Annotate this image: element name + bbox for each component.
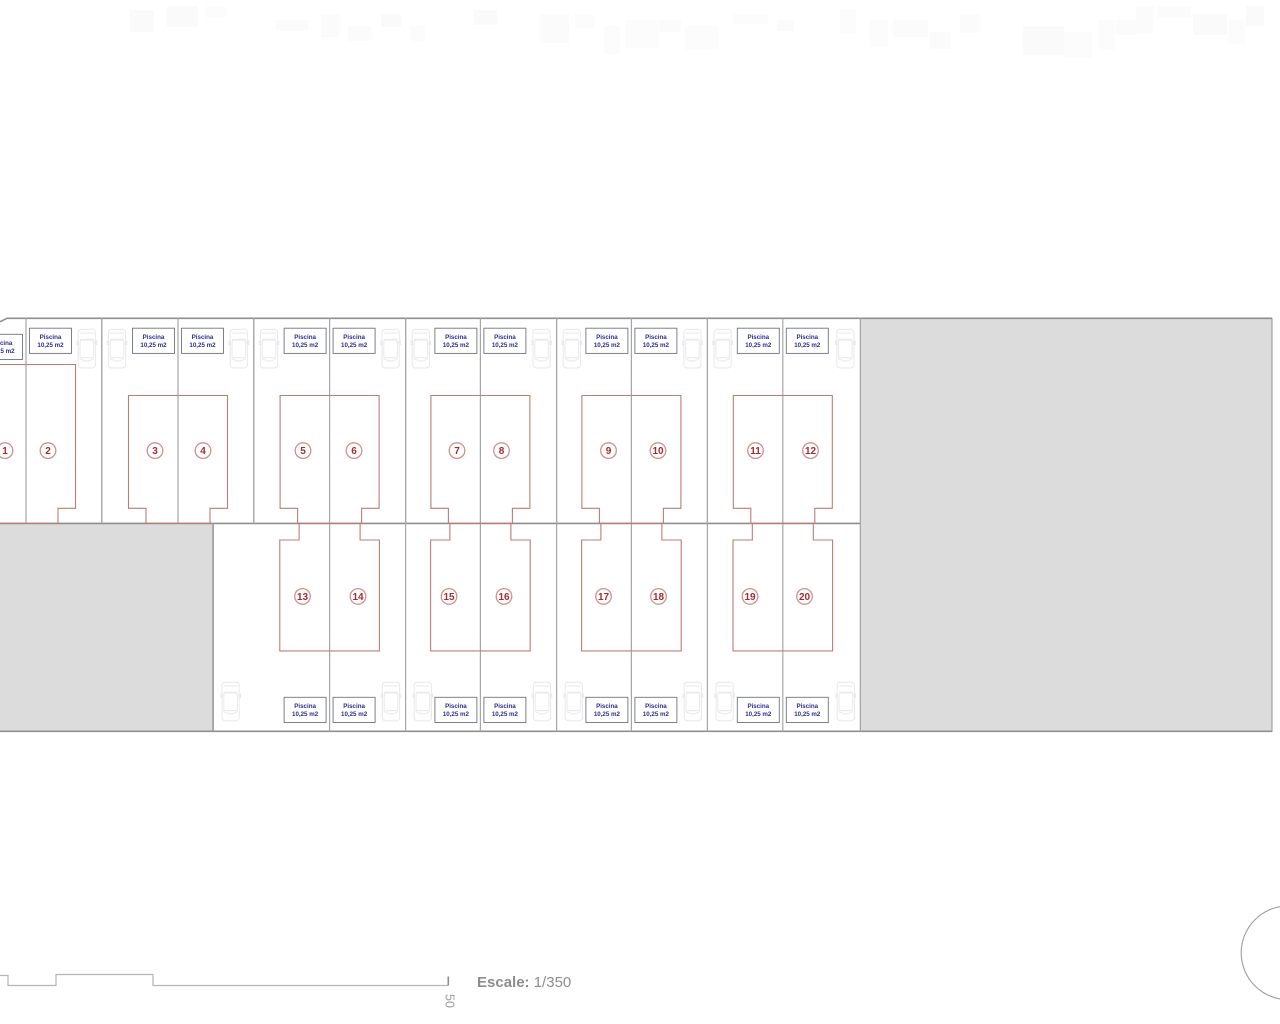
svg-text:14: 14 (352, 592, 364, 603)
svg-text:10,25 m2: 10,25 m2 (0, 348, 15, 355)
svg-text:Piscina: Piscina (796, 703, 818, 710)
svg-text:Piscina: Piscina (40, 334, 62, 341)
svg-text:10,25 m2: 10,25 m2 (341, 342, 368, 349)
svg-text:10,25 m2: 10,25 m2 (492, 342, 519, 349)
svg-text:12: 12 (805, 446, 817, 457)
svg-text:6: 6 (351, 446, 357, 457)
svg-text:Piscina: Piscina (494, 703, 516, 710)
svg-text:Piscina: Piscina (192, 334, 214, 341)
svg-text:4: 4 (200, 446, 206, 457)
svg-text:10,25 m2: 10,25 m2 (189, 342, 216, 349)
svg-text:Piscina: Piscina (596, 334, 618, 341)
svg-text:10,25 m2: 10,25 m2 (745, 342, 772, 349)
svg-text:10,25 m2: 10,25 m2 (492, 711, 519, 718)
svg-text:10,25 m2: 10,25 m2 (794, 711, 821, 718)
svg-text:18: 18 (653, 592, 665, 603)
svg-text:10,25 m2: 10,25 m2 (594, 711, 621, 718)
svg-text:Escale: 1/350: Escale: 1/350 (477, 974, 571, 991)
svg-text:Piscina: Piscina (0, 340, 13, 347)
svg-text:7: 7 (454, 446, 460, 457)
svg-text:Piscina: Piscina (796, 334, 818, 341)
svg-text:16: 16 (498, 592, 510, 603)
svg-text:15: 15 (443, 592, 455, 603)
svg-text:Piscina: Piscina (747, 334, 769, 341)
svg-text:10,25 m2: 10,25 m2 (794, 342, 821, 349)
svg-text:10,25 m2: 10,25 m2 (37, 342, 64, 349)
svg-text:Piscina: Piscina (445, 334, 467, 341)
svg-text:Piscina: Piscina (343, 703, 365, 710)
svg-text:13: 13 (297, 592, 309, 603)
svg-text:10,25 m2: 10,25 m2 (341, 711, 368, 718)
svg-text:Piscina: Piscina (445, 703, 467, 710)
svg-text:Piscina: Piscina (596, 703, 618, 710)
svg-text:Piscina: Piscina (143, 334, 165, 341)
svg-text:Piscina: Piscina (494, 334, 516, 341)
svg-text:8: 8 (499, 446, 505, 457)
svg-text:10: 10 (652, 446, 664, 457)
svg-text:Piscina: Piscina (645, 334, 667, 341)
svg-text:50: 50 (443, 994, 457, 1008)
svg-text:20: 20 (799, 592, 811, 603)
svg-text:19: 19 (744, 592, 756, 603)
svg-text:10,25 m2: 10,25 m2 (443, 711, 470, 718)
svg-text:10,25 m2: 10,25 m2 (643, 711, 670, 718)
svg-text:9: 9 (606, 446, 612, 457)
svg-text:17: 17 (598, 592, 610, 603)
svg-text:Piscina: Piscina (294, 703, 316, 710)
svg-text:2: 2 (45, 446, 51, 457)
svg-text:10,25 m2: 10,25 m2 (643, 342, 670, 349)
svg-text:Piscina: Piscina (294, 334, 316, 341)
svg-text:3: 3 (152, 446, 158, 457)
svg-text:Piscina: Piscina (645, 703, 667, 710)
svg-text:10,25 m2: 10,25 m2 (292, 342, 319, 349)
svg-text:10,25 m2: 10,25 m2 (443, 342, 470, 349)
svg-text:10,25 m2: 10,25 m2 (745, 711, 772, 718)
svg-text:11: 11 (750, 446, 761, 457)
svg-text:Piscina: Piscina (343, 334, 365, 341)
svg-text:10,25 m2: 10,25 m2 (140, 342, 167, 349)
svg-text:Piscina: Piscina (747, 703, 769, 710)
svg-text:10,25 m2: 10,25 m2 (594, 342, 621, 349)
svg-text:1: 1 (2, 446, 8, 457)
svg-text:5: 5 (300, 446, 306, 457)
svg-text:10,25 m2: 10,25 m2 (292, 711, 319, 718)
